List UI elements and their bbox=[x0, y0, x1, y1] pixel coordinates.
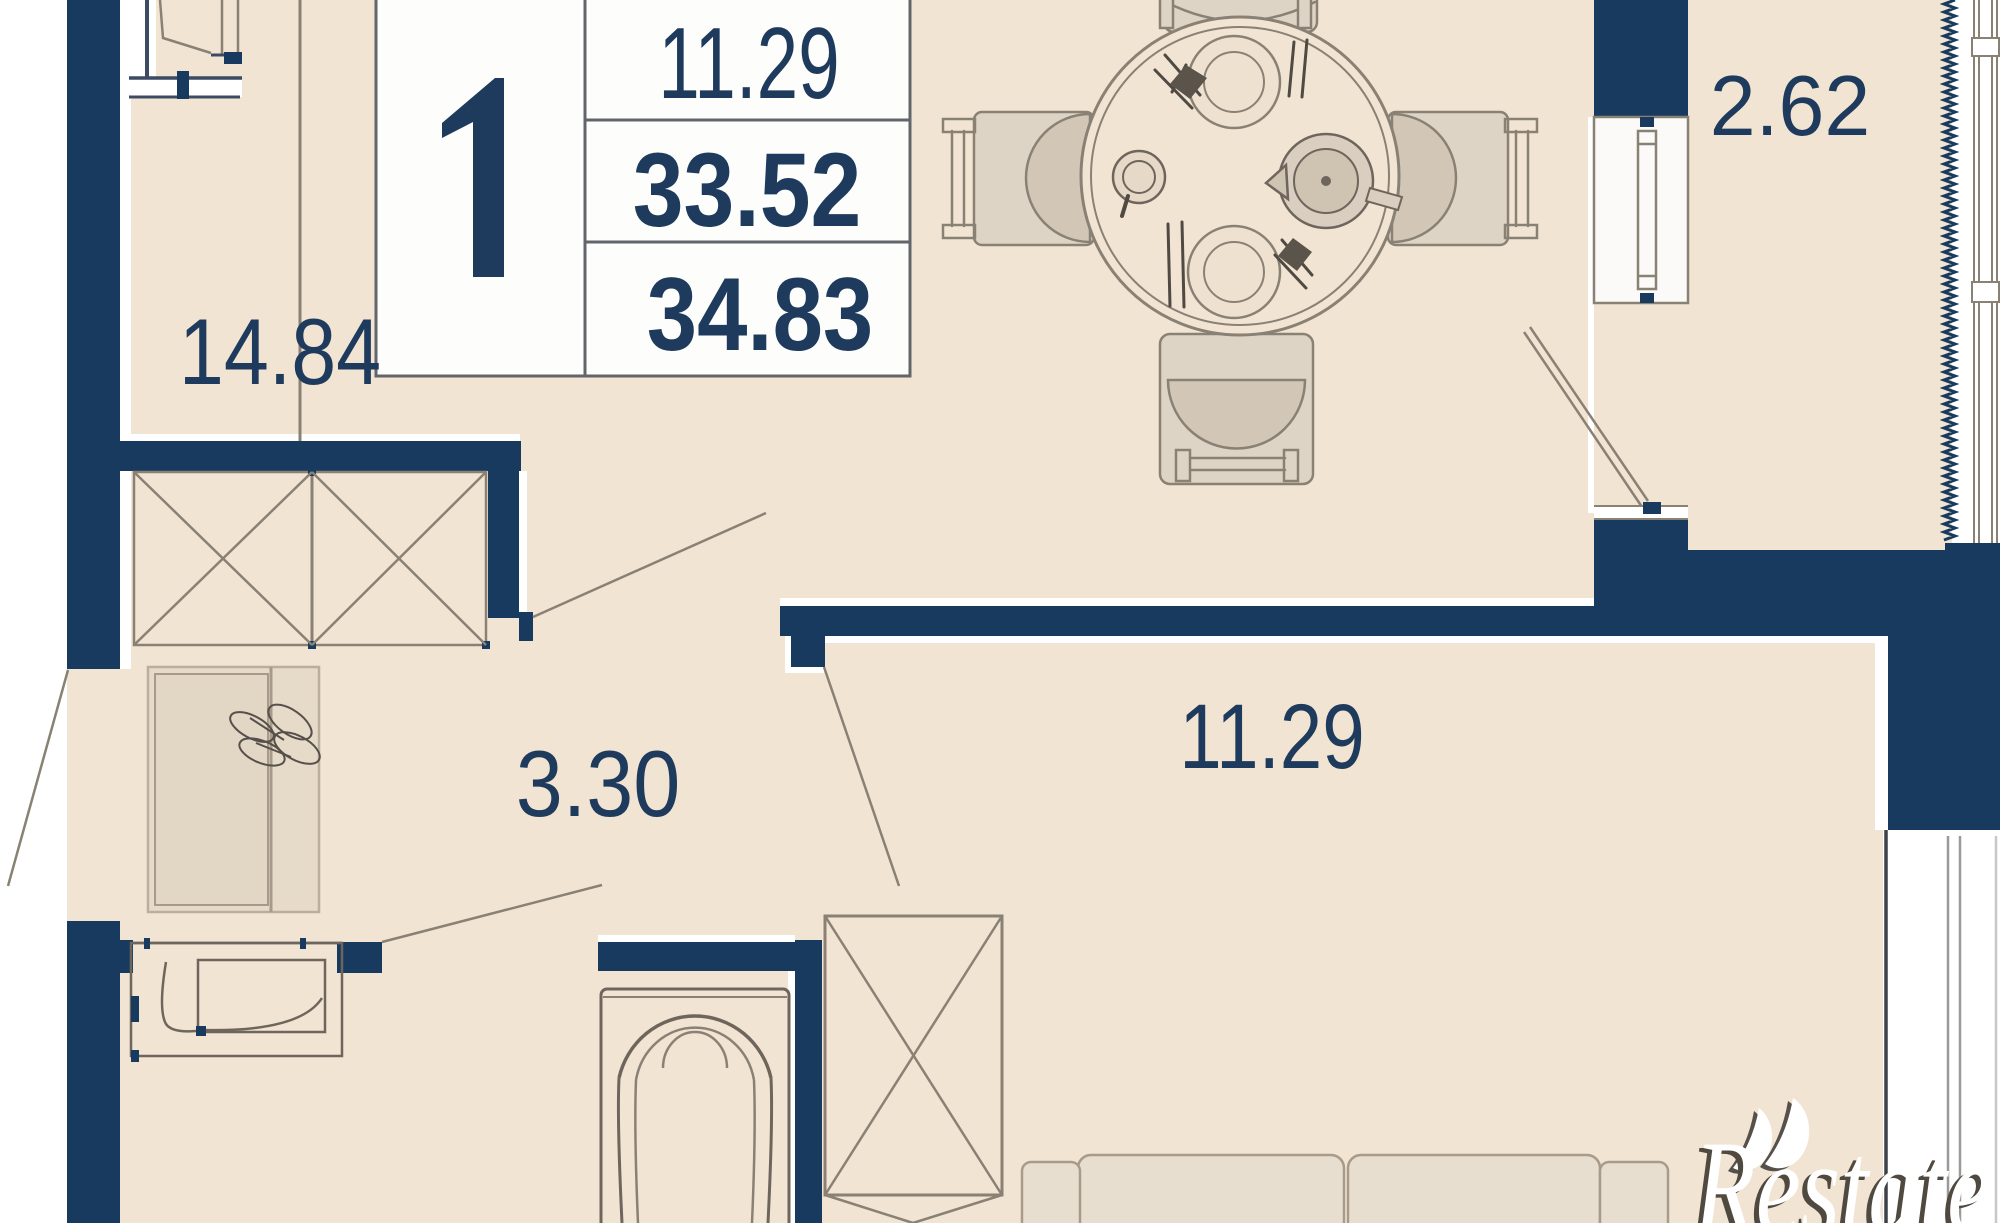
svg-text:11.29: 11.29 bbox=[658, 7, 839, 120]
svg-text:Restate: Restate bbox=[1693, 1113, 1992, 1223]
svg-text:3.30: 3.30 bbox=[516, 731, 681, 836]
svg-text:33.52: 33.52 bbox=[633, 131, 862, 248]
svg-text:34.83: 34.83 bbox=[647, 256, 873, 372]
svg-text:11.29: 11.29 bbox=[1179, 684, 1364, 787]
svg-text:14.84: 14.84 bbox=[179, 299, 381, 404]
svg-text:2.62: 2.62 bbox=[1710, 58, 1870, 153]
